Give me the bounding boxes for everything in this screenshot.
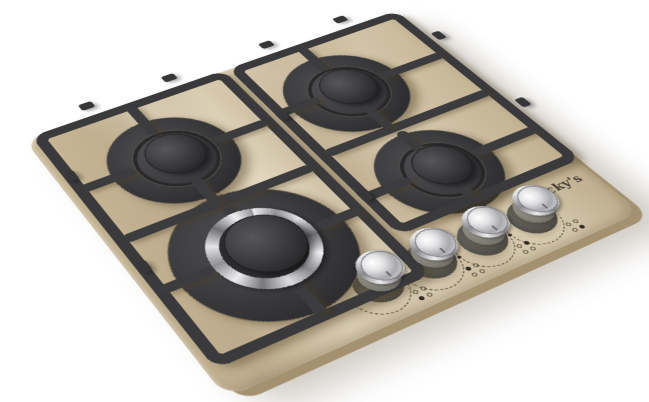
knob-pointer-notch <box>542 204 549 209</box>
product-photo-gas-hob: Jacky's <box>0 0 649 402</box>
grate-tab <box>258 40 275 49</box>
grate-tab <box>431 31 447 41</box>
knob-pointer-notch <box>491 225 498 230</box>
knob-pointer-notch <box>385 271 391 277</box>
grate-tab <box>332 15 349 24</box>
grate-tab <box>514 97 532 108</box>
knob-pointer-notch <box>439 248 446 253</box>
hob-plane: Jacky's <box>24 13 640 398</box>
grate-tab <box>161 73 178 83</box>
grate-tab <box>78 101 96 111</box>
